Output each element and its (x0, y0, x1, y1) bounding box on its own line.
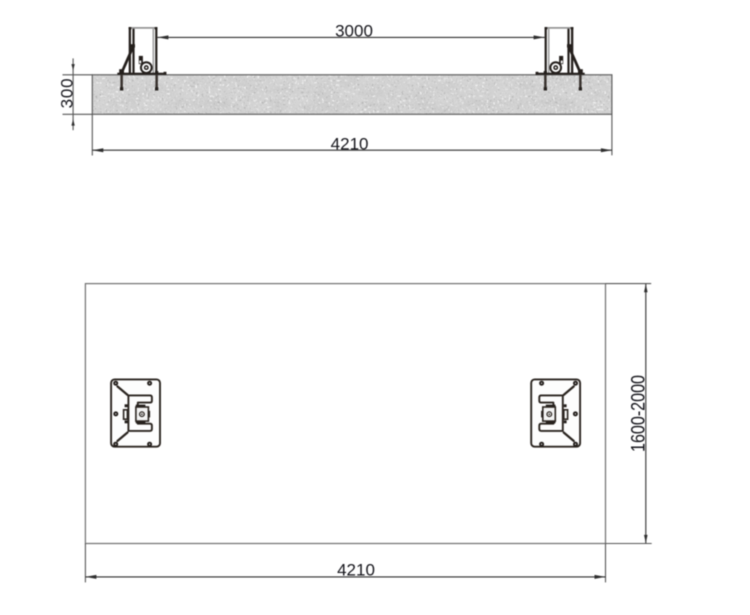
svg-text:300: 300 (57, 78, 76, 109)
svg-text:4210: 4210 (337, 560, 375, 579)
svg-text:1600-2000: 1600-2000 (627, 375, 649, 452)
svg-text:4210: 4210 (331, 134, 369, 153)
svg-text:3000: 3000 (335, 21, 373, 40)
